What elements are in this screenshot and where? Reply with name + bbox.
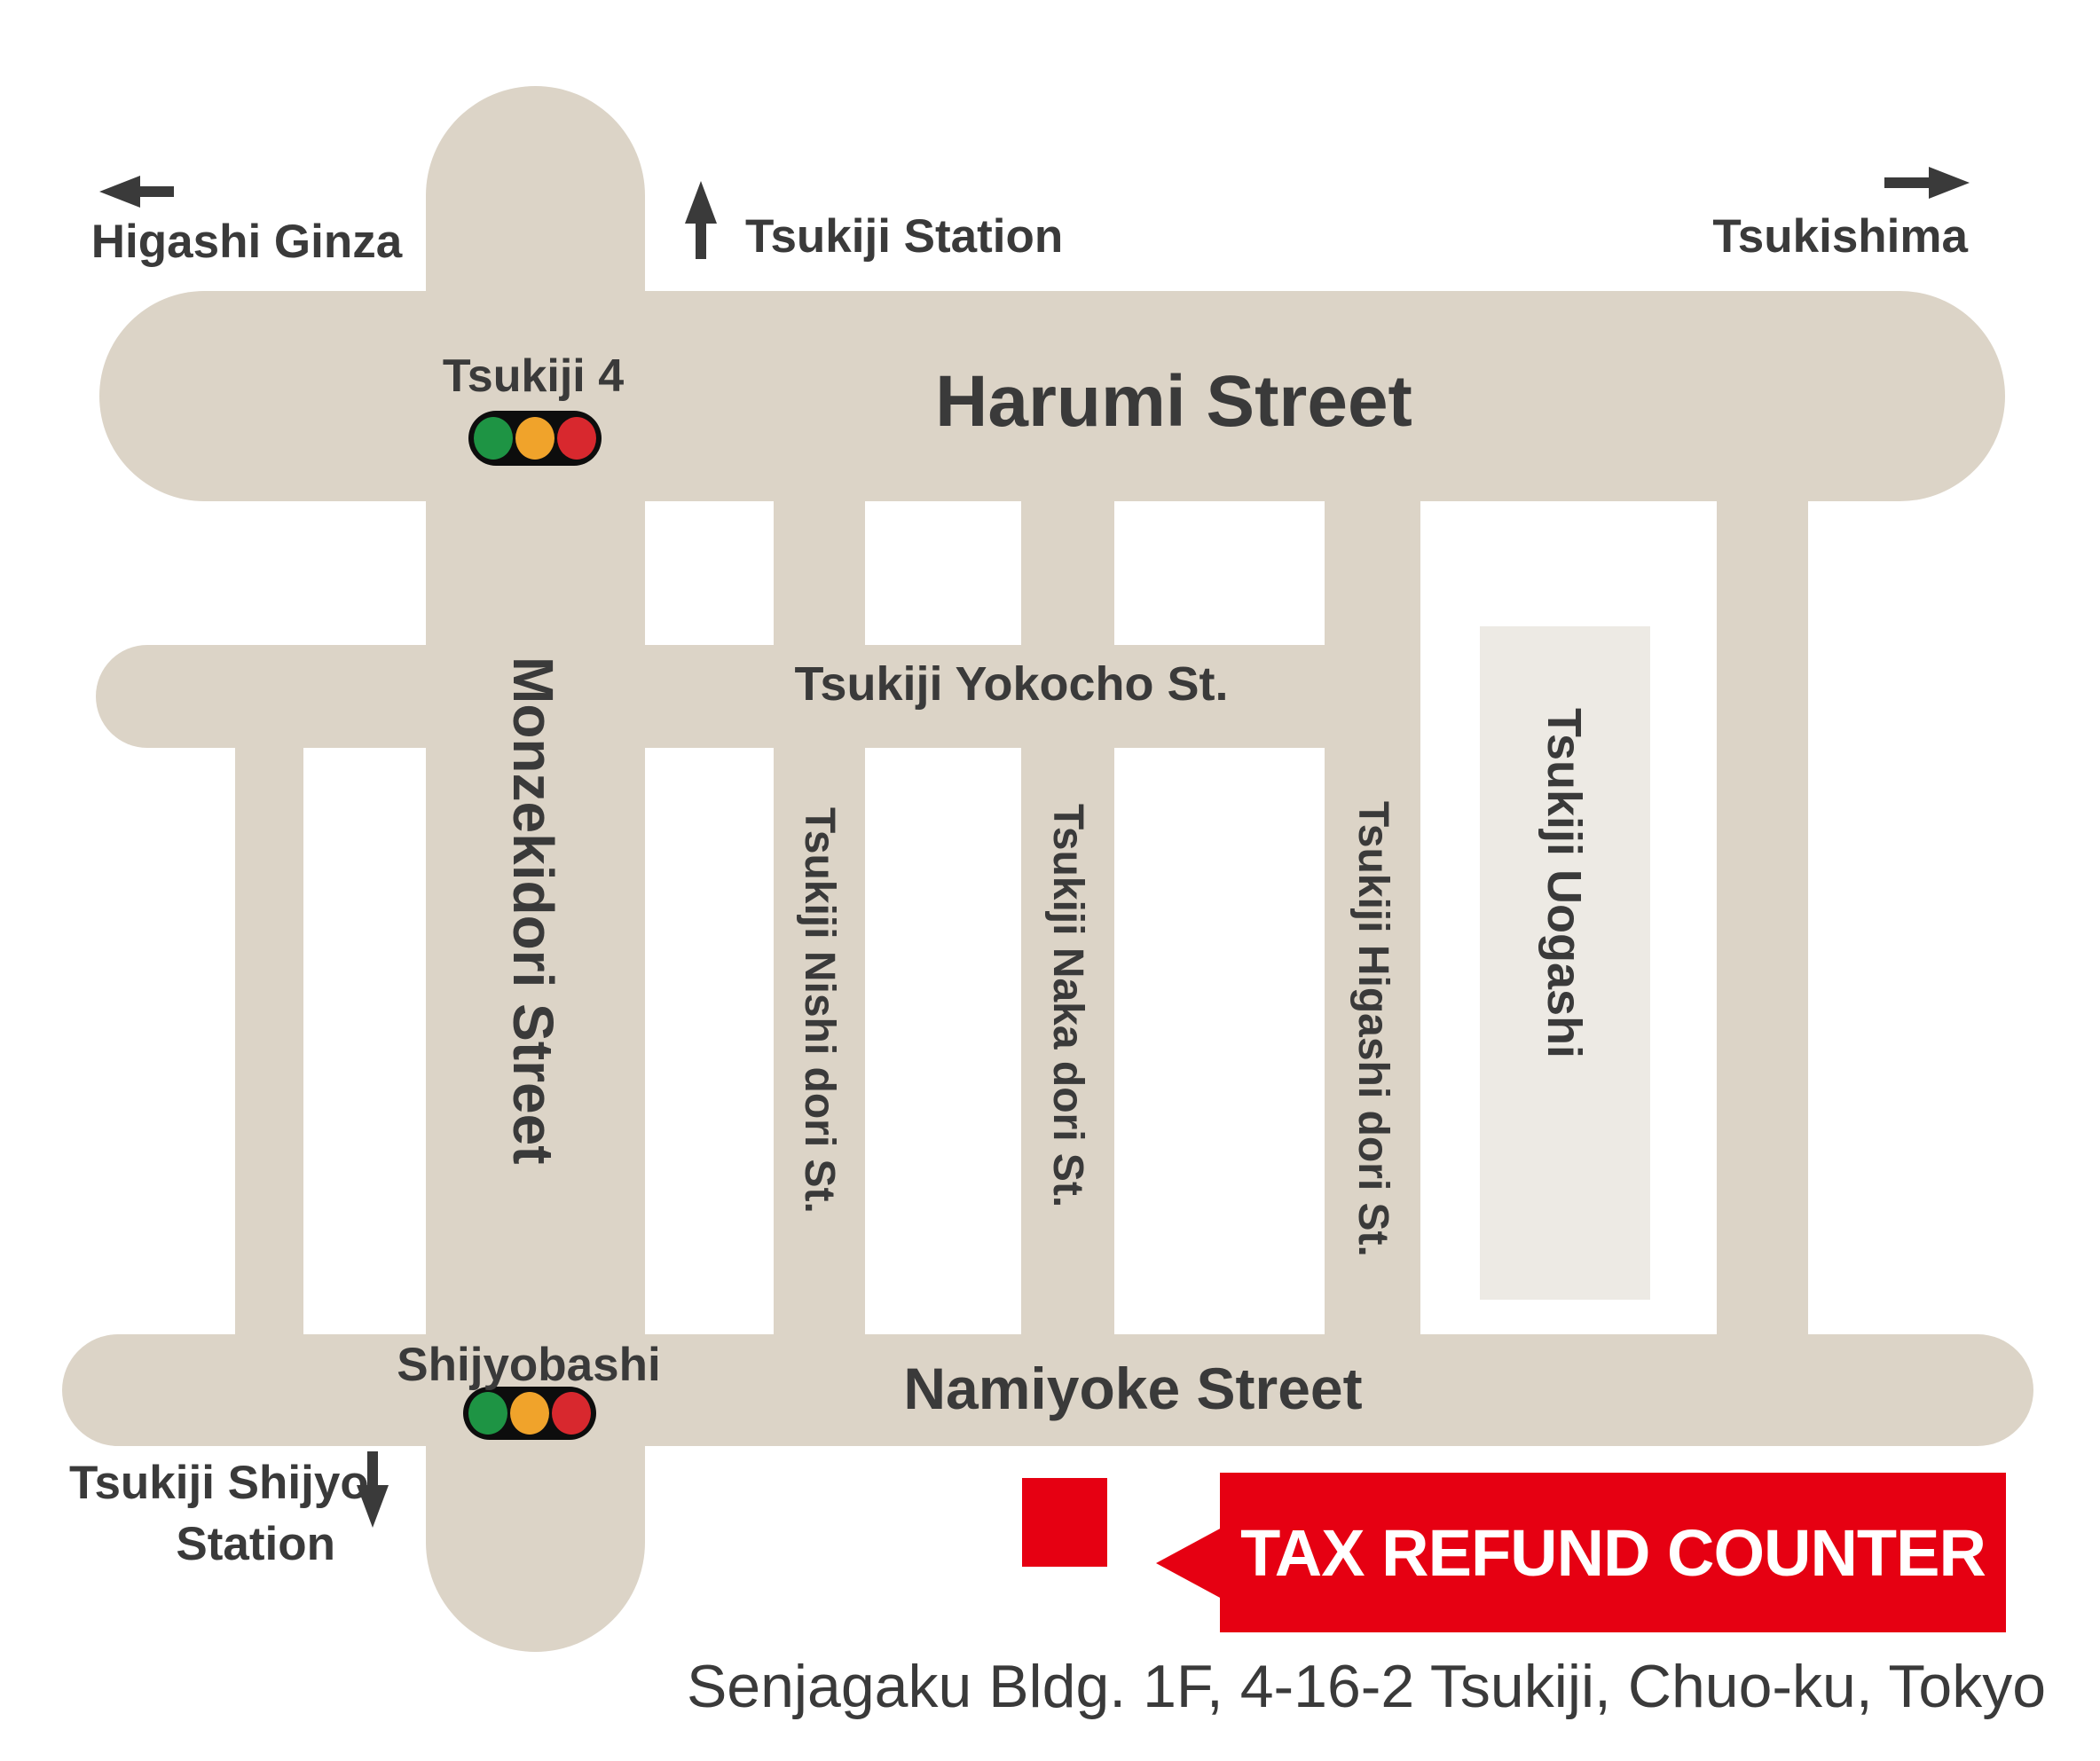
tsukiji-shijyo-line1: Tsukiji Shijyo: [69, 1453, 335, 1514]
tsukiji-station-label: Tsukiji Station: [745, 213, 1063, 260]
up-arrow-icon: [683, 181, 719, 259]
tsukiji-shijyo-line2: Station: [69, 1514, 335, 1576]
amber-light: [515, 417, 554, 460]
red-light: [552, 1392, 591, 1435]
green-light: [468, 1392, 507, 1435]
tsukiji-access-map: Higashi Ginza Tsukiji Station Tsukishima…: [0, 0, 2100, 1761]
traffic-light-icon-shijyobashi: [463, 1387, 596, 1440]
tsukiji-yokocho-label: Tsukiji Yokocho St.: [794, 660, 1228, 708]
harumi-street-label: Harumi Street: [935, 366, 1412, 438]
tax-refund-banner-label: TAX REFUND COUNTER: [1240, 1515, 1986, 1591]
tsukiji-nishi-dori-label: Tsukiji Nishi dori St.: [798, 807, 840, 1214]
tax-refund-banner: TAX REFUND COUNTER: [1220, 1473, 2006, 1632]
right-arrow-icon: [1884, 165, 1970, 200]
tax-refund-location-marker: [1022, 1478, 1107, 1567]
red-light: [557, 417, 596, 460]
tsukiji-shijyo-station-label: Tsukiji Shijyo Station: [69, 1453, 335, 1576]
higashi-ginza-label: Higashi Ginza: [91, 218, 402, 265]
tsukishima-label: Tsukishima: [1712, 213, 1968, 260]
tsukiji-4-label: Tsukiji 4: [443, 353, 624, 399]
traffic-light-icon-tsukiji4: [468, 411, 602, 466]
west-side-street-road: [235, 710, 303, 1340]
tsukiji-naka-dori-label: Tsukiji Naka dori St.: [1046, 804, 1089, 1207]
address-line: Senjagaku Bldg. 1F, 4-16-2 Tsukiji, Chuo…: [687, 1652, 2046, 1721]
shijyobashi-label: Shijyobashi: [397, 1341, 660, 1388]
tsukiji-higashi-dori-label: Tsukiji Higashi dori St.: [1351, 801, 1394, 1257]
monzekidori-street-label: Monzekidori Street: [505, 656, 562, 1165]
left-arrow-icon: [99, 174, 174, 209]
banner-pointer-icon: [1156, 1528, 1222, 1599]
east-side-street-road: [1717, 501, 1808, 1334]
tsukiji-uogashi-label: Tsukiji Uogashi: [1540, 708, 1588, 1058]
green-light: [474, 417, 513, 460]
namiyoke-street-label: Namiyoke Street: [903, 1359, 1362, 1418]
amber-light: [510, 1392, 549, 1435]
